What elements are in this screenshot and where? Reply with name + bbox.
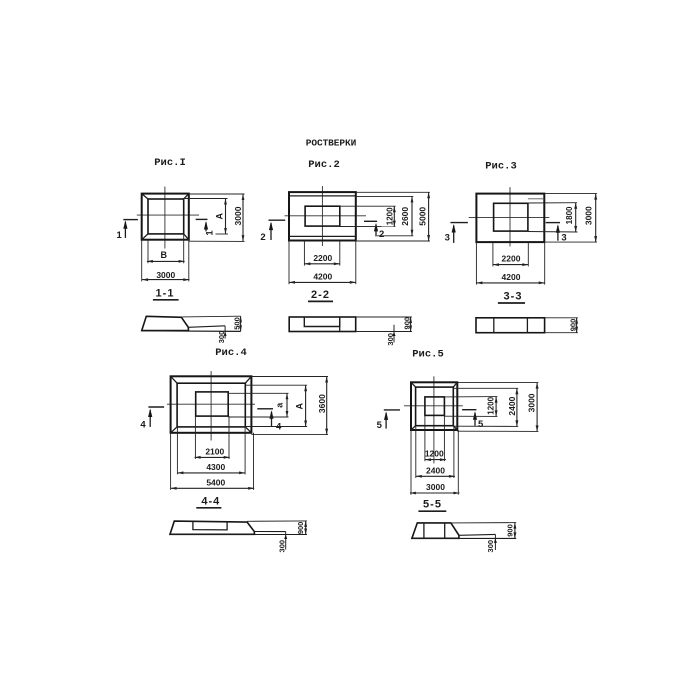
svg-text:300: 300 xyxy=(217,331,226,344)
svg-text:1200: 1200 xyxy=(425,449,444,459)
svg-text:4: 4 xyxy=(140,420,146,431)
svg-text:Рис.3: Рис.3 xyxy=(485,161,517,173)
svg-text:1: 1 xyxy=(205,230,216,236)
svg-text:4300: 4300 xyxy=(206,462,225,472)
svg-text:4: 4 xyxy=(276,422,282,433)
svg-text:5400: 5400 xyxy=(206,478,225,488)
svg-text:5000: 5000 xyxy=(418,207,428,226)
svg-text:3: 3 xyxy=(445,233,450,244)
svg-text:А: А xyxy=(215,213,225,220)
svg-text:3000: 3000 xyxy=(526,393,536,412)
svg-text:3000: 3000 xyxy=(233,206,243,225)
svg-text:3-3: 3-3 xyxy=(504,291,523,303)
svg-text:3000: 3000 xyxy=(583,206,593,225)
svg-text:900: 900 xyxy=(403,317,412,330)
svg-text:В: В xyxy=(161,250,168,260)
svg-text:900: 900 xyxy=(296,522,305,535)
svg-text:2: 2 xyxy=(379,229,384,240)
svg-text:1200: 1200 xyxy=(487,396,496,414)
svg-text:2: 2 xyxy=(260,232,265,243)
svg-text:3000: 3000 xyxy=(426,482,445,492)
svg-text:300: 300 xyxy=(386,333,395,346)
svg-text:300: 300 xyxy=(486,540,495,553)
svg-text:1: 1 xyxy=(117,230,123,241)
svg-text:5: 5 xyxy=(377,420,383,431)
svg-text:3000: 3000 xyxy=(156,270,175,280)
svg-text:4200: 4200 xyxy=(313,272,332,282)
svg-text:2200: 2200 xyxy=(502,254,521,264)
svg-text:А: А xyxy=(294,402,304,409)
svg-text:5: 5 xyxy=(478,419,484,430)
svg-text:Рис.4: Рис.4 xyxy=(215,347,247,359)
svg-text:900: 900 xyxy=(569,319,578,332)
svg-text:Рис.I: Рис.I xyxy=(154,157,186,169)
svg-text:4200: 4200 xyxy=(502,272,521,282)
svg-text:2400: 2400 xyxy=(507,396,517,415)
svg-text:5-5: 5-5 xyxy=(423,499,442,511)
svg-text:2-2: 2-2 xyxy=(311,289,330,301)
svg-text:2100: 2100 xyxy=(205,447,224,457)
svg-text:Рис.5: Рис.5 xyxy=(412,349,444,361)
svg-text:500: 500 xyxy=(233,317,242,330)
svg-text:300: 300 xyxy=(277,540,286,553)
svg-text:2200: 2200 xyxy=(313,253,332,263)
svg-text:1200: 1200 xyxy=(386,207,395,225)
svg-text:1800: 1800 xyxy=(565,206,574,224)
svg-text:2600: 2600 xyxy=(400,207,410,226)
svg-text:1-1: 1-1 xyxy=(156,288,175,300)
svg-text:900: 900 xyxy=(506,524,515,537)
svg-text:2400: 2400 xyxy=(426,465,445,475)
svg-text:3600: 3600 xyxy=(317,394,327,413)
svg-text:4-4: 4-4 xyxy=(201,496,220,508)
svg-text:РОСТВЕРКИ: РОСТВЕРКИ xyxy=(306,138,357,149)
svg-text:Рис.2: Рис.2 xyxy=(308,159,340,171)
